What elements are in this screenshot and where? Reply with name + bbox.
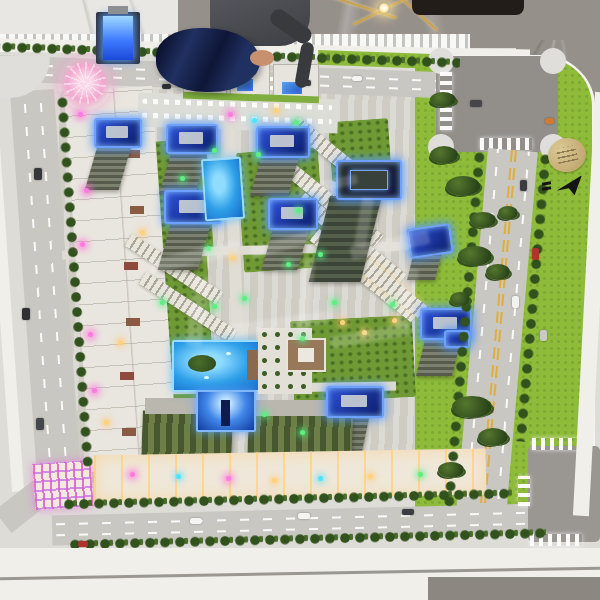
car <box>34 168 42 180</box>
green-led <box>318 252 323 257</box>
pink-led <box>78 112 83 117</box>
pavilion <box>286 338 326 372</box>
pink-led <box>88 332 93 337</box>
floor-bottom-corner <box>428 577 600 600</box>
green-led <box>296 208 301 213</box>
brown-roof <box>124 262 138 270</box>
car <box>22 308 30 320</box>
tree-cluster <box>450 292 470 306</box>
green-led <box>242 296 247 301</box>
car <box>352 76 362 81</box>
tree-cluster <box>498 206 518 220</box>
tree-cluster <box>478 428 508 446</box>
figure-light <box>274 108 279 113</box>
photo-scale-model-scene <box>0 0 600 600</box>
roof-core <box>106 126 128 138</box>
blue-roof-tower <box>268 198 318 230</box>
green-led <box>286 262 291 267</box>
warm-led <box>104 420 109 425</box>
pink-led <box>226 476 231 481</box>
person-hand <box>250 50 274 66</box>
car <box>470 100 482 107</box>
roof-core <box>341 395 367 407</box>
roof-core <box>433 317 457 329</box>
car <box>520 180 527 191</box>
tree-cluster <box>430 146 458 164</box>
pink-led <box>80 242 85 247</box>
brown-roof <box>120 372 134 380</box>
roof-core <box>179 200 205 213</box>
fixture-light-glow <box>378 2 390 14</box>
warm-led <box>368 474 373 479</box>
car <box>298 513 310 519</box>
figure-light <box>294 120 299 125</box>
green-led <box>418 472 423 477</box>
crosswalk <box>518 476 530 506</box>
pink-led <box>92 388 97 393</box>
blue-roof-tower <box>326 386 384 418</box>
crosswalk <box>532 438 580 450</box>
brown-roof <box>130 206 144 214</box>
car <box>402 509 414 515</box>
linear-pool <box>201 157 245 222</box>
tree-cluster <box>446 176 480 196</box>
pool-sparkle <box>226 352 231 355</box>
green-led <box>262 412 267 417</box>
roof-core <box>179 132 203 144</box>
figure-light <box>228 112 233 117</box>
tree-cluster <box>470 212 496 228</box>
warm-led <box>118 340 123 345</box>
blue-roof-tower <box>94 118 142 148</box>
blue-cloth <box>156 28 260 92</box>
pink-plaza-spokes <box>64 62 106 104</box>
car <box>545 118 554 124</box>
pavilion-court <box>298 348 314 362</box>
brown-roof <box>126 318 140 326</box>
green-led <box>212 148 217 153</box>
pool-sparkle <box>204 376 209 379</box>
blue-roof-tower <box>166 124 218 154</box>
figure-light <box>252 118 257 123</box>
cyan-led <box>318 476 323 481</box>
plaque-engraving <box>556 145 579 164</box>
warm-led <box>272 478 277 483</box>
car <box>78 541 88 547</box>
warm-led <box>340 320 345 325</box>
car <box>36 418 44 430</box>
car <box>540 330 547 341</box>
pink-led <box>130 472 135 477</box>
glowing-blue-court <box>196 390 256 432</box>
court-pier <box>221 400 230 426</box>
green-led <box>390 302 395 307</box>
green-led <box>180 176 185 181</box>
edge-tower-glass <box>103 16 133 60</box>
edge-tower-cap <box>108 6 128 14</box>
green-led <box>160 300 165 305</box>
tree-cluster <box>430 92 456 107</box>
green-led <box>212 304 217 309</box>
car <box>190 518 202 524</box>
cyan-led <box>176 474 181 479</box>
car <box>162 84 171 89</box>
warm-led <box>140 230 145 235</box>
corner-fillet <box>540 48 566 74</box>
tree-cluster <box>486 264 510 280</box>
green-led <box>256 152 261 157</box>
tree-cluster <box>438 462 464 478</box>
brown-roof <box>122 428 136 436</box>
pink-led <box>84 188 89 193</box>
dark-object <box>412 0 524 15</box>
green-led <box>300 430 305 435</box>
edge-tower-side-view <box>96 12 140 64</box>
blue-roof-tower <box>256 126 310 158</box>
car <box>512 296 519 308</box>
car <box>532 248 539 260</box>
tree-cluster <box>458 246 492 266</box>
roof-core <box>270 135 294 147</box>
green-led <box>332 300 337 305</box>
pool-island <box>188 355 216 372</box>
tree-cluster <box>452 396 492 418</box>
